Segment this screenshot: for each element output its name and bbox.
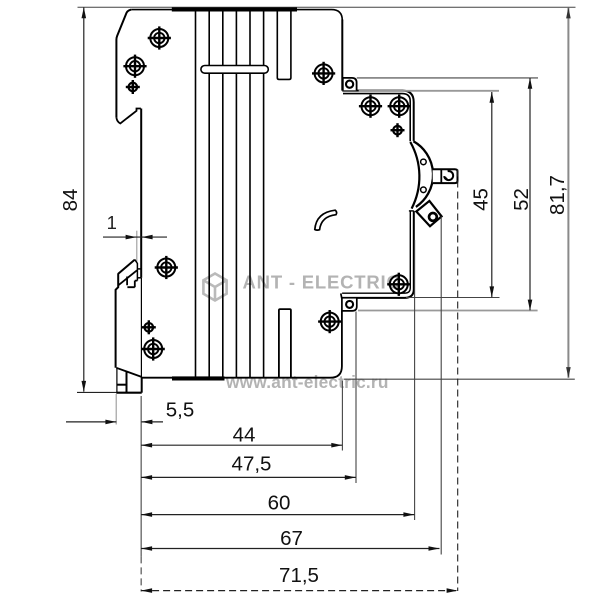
svg-text:47,5: 47,5	[232, 453, 272, 476]
svg-text:45: 45	[470, 188, 493, 211]
svg-text:81,7: 81,7	[546, 175, 569, 215]
svg-text:5,5: 5,5	[166, 399, 195, 422]
svg-text:60: 60	[268, 492, 291, 515]
svg-text:52: 52	[510, 188, 533, 211]
svg-text:1: 1	[107, 212, 117, 233]
svg-text:84: 84	[59, 189, 82, 212]
svg-text:44: 44	[233, 424, 256, 447]
svg-text:67: 67	[280, 527, 303, 550]
svg-text:ANT - ELECTRIC: ANT - ELECTRIC	[243, 272, 401, 293]
svg-text:71,5: 71,5	[279, 564, 319, 587]
